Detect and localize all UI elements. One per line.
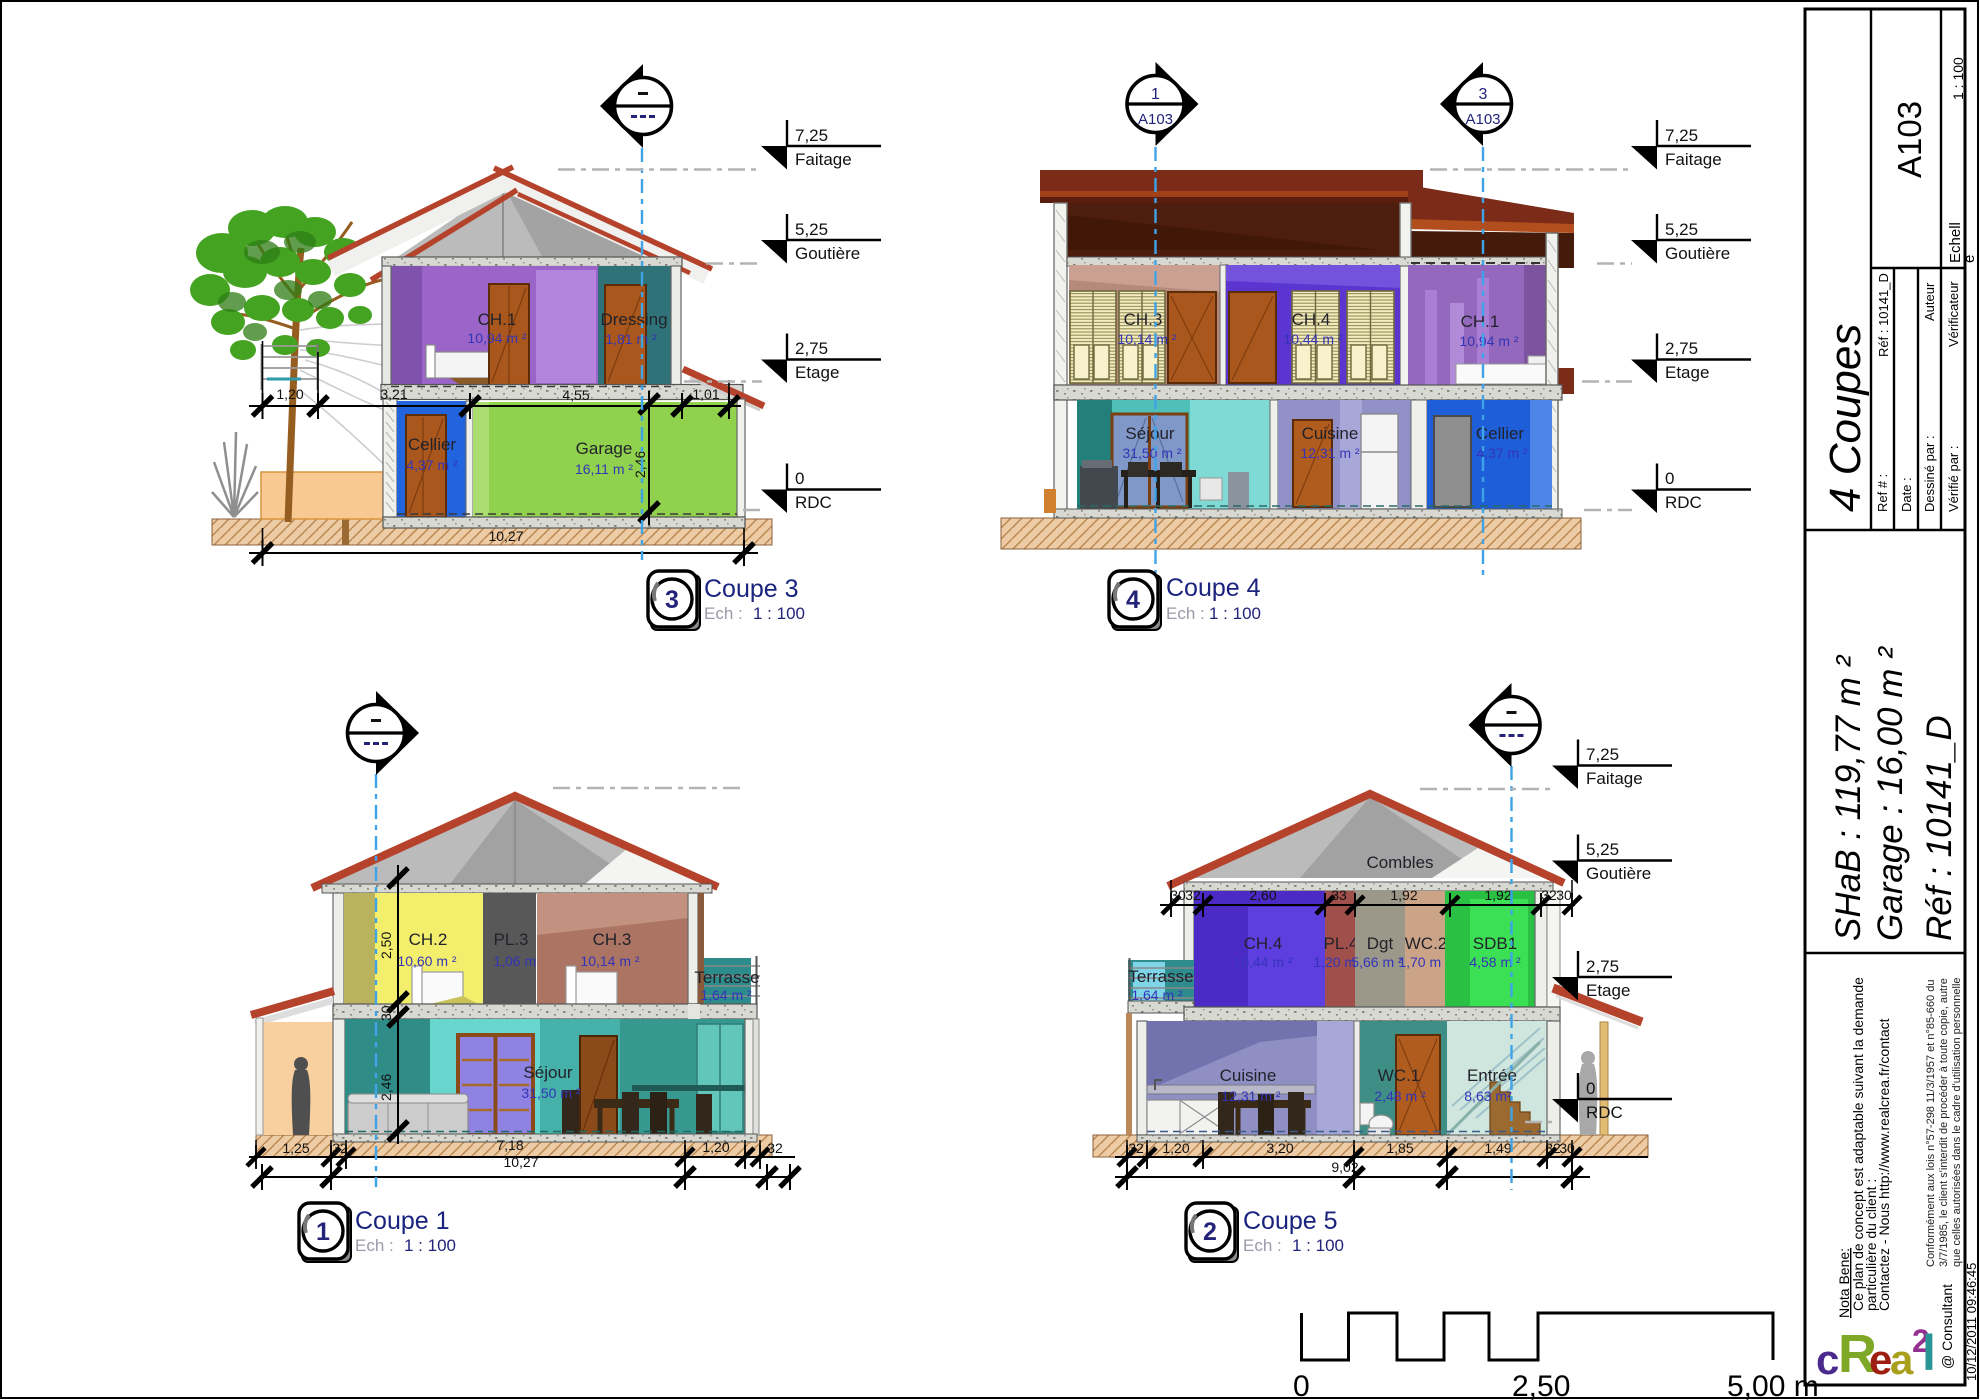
svg-text:7,25: 7,25: [1665, 126, 1698, 145]
svg-text:5,66 m ²: 5,66 m ²: [1351, 954, 1403, 970]
svg-text:1,20: 1,20: [276, 386, 303, 402]
svg-text:que celles autorisées dans le: que celles autorisées dans le cadre d'ut…: [1951, 977, 1963, 1267]
svg-text:Réf : 10141_D: Réf : 10141_D: [1920, 715, 1959, 941]
svg-text:1,25: 1,25: [282, 1140, 309, 1156]
svg-text:0: 0: [1665, 469, 1674, 488]
svg-text:12,31 m ²: 12,31 m ²: [1221, 1088, 1280, 1104]
svg-text:5,25: 5,25: [1665, 220, 1698, 239]
svg-text:2,50: 2,50: [1512, 1370, 1570, 1400]
svg-text:16,11 m ²: 16,11 m ²: [575, 461, 633, 477]
svg-text:Faitage: Faitage: [795, 150, 852, 169]
svg-text:1,92: 1,92: [1484, 887, 1511, 903]
svg-text:Dessiné par :: Dessiné par :: [1922, 435, 1937, 512]
svg-text:e: e: [1961, 255, 1978, 263]
svg-text:Entrée: Entrée: [1467, 1066, 1517, 1085]
svg-text:7,25: 7,25: [1586, 745, 1619, 764]
svg-text:2,48 m ²: 2,48 m ²: [1374, 1088, 1426, 1104]
svg-text:1,92: 1,92: [1390, 887, 1417, 903]
svg-text:@ Consultant: @ Consultant: [1939, 1284, 1955, 1369]
svg-text:32: 32: [332, 1140, 348, 1156]
svg-text:SHaB : 119,77 m ²: SHaB : 119,77 m ²: [1829, 654, 1868, 941]
svg-text:12,31 m ²: 12,31 m ²: [1300, 445, 1359, 461]
svg-text:Dressing: Dressing: [600, 310, 667, 329]
svg-text:0: 0: [1586, 1079, 1595, 1098]
svg-text:Coupe 3: Coupe 3: [704, 575, 799, 603]
svg-text:CH.1: CH.1: [478, 310, 517, 329]
svg-text:A103: A103: [1138, 111, 1173, 128]
svg-text:Goutière: Goutière: [1665, 244, 1730, 263]
svg-text:RDC: RDC: [795, 493, 832, 512]
svg-text:30: 30: [1170, 887, 1186, 903]
svg-text:Vérificateur: Vérificateur: [1946, 281, 1961, 347]
svg-text:Dgt: Dgt: [1367, 934, 1394, 953]
svg-text:1,81 m ²: 1,81 m ²: [605, 331, 657, 347]
svg-text:4,58 m ²: 4,58 m ²: [1469, 954, 1521, 970]
svg-text:2,75: 2,75: [1665, 339, 1698, 358]
svg-text:WC.1: WC.1: [1378, 1066, 1421, 1085]
svg-text:32: 32: [1541, 887, 1557, 903]
svg-text:3,20: 3,20: [1266, 1140, 1293, 1156]
svg-text:3,21: 3,21: [380, 386, 407, 402]
svg-text:RDC: RDC: [1665, 493, 1702, 512]
svg-text:1: 1: [1151, 86, 1160, 103]
svg-text:0: 0: [1293, 1370, 1310, 1400]
svg-text:Terrasse: Terrasse: [694, 968, 759, 987]
svg-text:7,18: 7,18: [496, 1137, 523, 1153]
svg-text:30: 30: [1559, 1140, 1575, 1156]
svg-text:1 : 100: 1 : 100: [1209, 604, 1261, 623]
svg-text:3: 3: [1479, 86, 1488, 103]
svg-text:33: 33: [1331, 887, 1347, 903]
svg-text:1,64 m ²: 1,64 m ²: [700, 987, 752, 1003]
svg-text:Goutière: Goutière: [1586, 864, 1651, 883]
svg-text:30: 30: [1556, 887, 1572, 903]
svg-text:Coupe 5: Coupe 5: [1243, 1207, 1338, 1235]
svg-text:5,25: 5,25: [1586, 840, 1619, 859]
svg-text:WC.2: WC.2: [1405, 934, 1448, 953]
svg-text:Cuisine: Cuisine: [1302, 424, 1359, 443]
svg-text:32: 32: [1185, 887, 1201, 903]
svg-text:Ech :: Ech :: [1166, 604, 1205, 623]
svg-text:CH.3: CH.3: [593, 930, 632, 949]
svg-text:32: 32: [767, 1140, 783, 1156]
svg-text:10,14 m ²: 10,14 m ²: [1117, 331, 1176, 347]
svg-text:Coupe 4: Coupe 4: [1166, 574, 1261, 602]
svg-text:30: 30: [378, 1005, 394, 1021]
svg-text:CH.1: CH.1: [1461, 312, 1500, 331]
svg-text:l: l: [1922, 1325, 1936, 1381]
svg-text:CH.4: CH.4: [1292, 310, 1331, 329]
svg-text:0: 0: [795, 469, 804, 488]
svg-text:10,44 m ²: 10,44 m ²: [1283, 331, 1342, 347]
svg-text:Ech :: Ech :: [1243, 1236, 1282, 1255]
svg-text:RDC: RDC: [1586, 1103, 1623, 1122]
svg-text:2,75: 2,75: [795, 339, 828, 358]
svg-text:31,50 m ²: 31,50 m ²: [1122, 445, 1181, 461]
svg-text:PL.3: PL.3: [494, 930, 529, 949]
svg-text:3/7/1985, le client s'interdit: 3/7/1985, le client s'interdit de procéd…: [1938, 978, 1950, 1267]
svg-text:1,01: 1,01: [692, 386, 719, 402]
svg-text:Séjour: Séjour: [1125, 424, 1174, 443]
svg-text:4: 4: [1126, 586, 1140, 614]
svg-text:A103: A103: [1891, 101, 1928, 178]
svg-text:3: 3: [665, 586, 679, 614]
svg-text:Cuisine: Cuisine: [1220, 1066, 1277, 1085]
svg-text:1,20: 1,20: [702, 1139, 729, 1155]
svg-text:Terrasse: Terrasse: [1128, 967, 1193, 986]
svg-text:7,25: 7,25: [795, 126, 828, 145]
svg-text:Etage: Etage: [795, 363, 839, 382]
svg-text:2,75: 2,75: [1586, 957, 1619, 976]
svg-text:Cellier: Cellier: [408, 435, 457, 454]
svg-text:Etage: Etage: [1665, 363, 1709, 382]
svg-text:Garage: Garage: [576, 439, 633, 458]
svg-text:8,63 m²: 8,63 m²: [1464, 1088, 1512, 1104]
svg-text:Garage : 16,00 m ²: Garage : 16,00 m ²: [1871, 646, 1910, 941]
svg-text:Séjour: Séjour: [523, 1063, 572, 1082]
svg-text:1 : 100: 1 : 100: [1292, 1236, 1344, 1255]
svg-text:a: a: [1890, 1336, 1914, 1383]
svg-text:Goutière: Goutière: [795, 244, 860, 263]
svg-text:31,50 m ²: 31,50 m ²: [521, 1085, 580, 1101]
svg-text:A103: A103: [1465, 111, 1500, 128]
svg-text:4 Coupes: 4 Coupes: [1821, 324, 1870, 512]
svg-text:2,50: 2,50: [378, 932, 394, 959]
svg-text:1: 1: [316, 1218, 330, 1246]
svg-text:Ref # :: Ref # :: [1875, 474, 1890, 512]
svg-text:10,94 m ²: 10,94 m ²: [467, 330, 526, 346]
svg-text:Réf : 10141_D: Réf : 10141_D: [1876, 273, 1891, 357]
svg-text:10,94 m ²: 10,94 m ²: [1459, 333, 1518, 349]
svg-text:1 : 100: 1 : 100: [1950, 57, 1966, 100]
svg-text:PL.4: PL.4: [1324, 934, 1359, 953]
svg-text:10,27: 10,27: [488, 528, 523, 544]
svg-text:Faitage: Faitage: [1665, 150, 1722, 169]
svg-text:5,00 m: 5,00 m: [1727, 1370, 1819, 1400]
svg-text:1,70 m ²: 1,70 m ²: [1398, 954, 1450, 970]
svg-text:CH.2: CH.2: [409, 930, 448, 949]
svg-text:4,55: 4,55: [562, 387, 589, 403]
svg-text:Ech :: Ech :: [704, 604, 743, 623]
svg-text:Combles: Combles: [1366, 853, 1433, 872]
svg-text:4,37 m ²: 4,37 m ²: [406, 457, 458, 473]
svg-text:10,27: 10,27: [503, 1154, 538, 1170]
svg-text:Date :: Date :: [1899, 477, 1914, 512]
svg-text:10,14 m ²: 10,14 m ²: [580, 953, 639, 969]
svg-text:2,46: 2,46: [632, 451, 648, 478]
svg-text:2,46: 2,46: [378, 1074, 394, 1101]
svg-text:5,25: 5,25: [795, 220, 828, 239]
svg-text:Coupe 1: Coupe 1: [355, 1207, 450, 1235]
svg-text:Ech :: Ech :: [355, 1236, 394, 1255]
svg-text:Conformément aux lois n°57-298: Conformément aux lois n°57-298 11/3/1957…: [1925, 980, 1937, 1267]
svg-text:c: c: [1816, 1336, 1839, 1383]
svg-text:1 : 100: 1 : 100: [404, 1236, 456, 1255]
svg-text:1 : 100: 1 : 100: [753, 604, 805, 623]
svg-text:1,49: 1,49: [1484, 1140, 1511, 1156]
svg-text:Faitage: Faitage: [1586, 769, 1643, 788]
svg-text:32: 32: [1128, 1140, 1144, 1156]
svg-text:1,85: 1,85: [1386, 1140, 1413, 1156]
svg-text:Contactez - Nous http://www.re: Contactez - Nous http://www.realcrea.fr/…: [1876, 1018, 1892, 1311]
svg-text:10,60 m ²: 10,60 m ²: [397, 953, 456, 969]
svg-text:10/12/2011 09:46:45: 10/12/2011 09:46:45: [1964, 1263, 1979, 1381]
svg-text:1,20: 1,20: [1162, 1140, 1189, 1156]
svg-text:e: e: [1869, 1336, 1892, 1383]
svg-text:Auteur: Auteur: [1922, 282, 1937, 321]
svg-text:Etage: Etage: [1586, 981, 1630, 1000]
svg-text:2,60: 2,60: [1249, 887, 1276, 903]
svg-text:Vérifié par :: Vérifié par :: [1946, 446, 1961, 512]
svg-text:9,02: 9,02: [1331, 1159, 1358, 1175]
svg-text:10,44 m ²: 10,44 m ²: [1233, 954, 1292, 970]
svg-text:2: 2: [1203, 1218, 1217, 1246]
svg-text:CH.4: CH.4: [1244, 934, 1283, 953]
